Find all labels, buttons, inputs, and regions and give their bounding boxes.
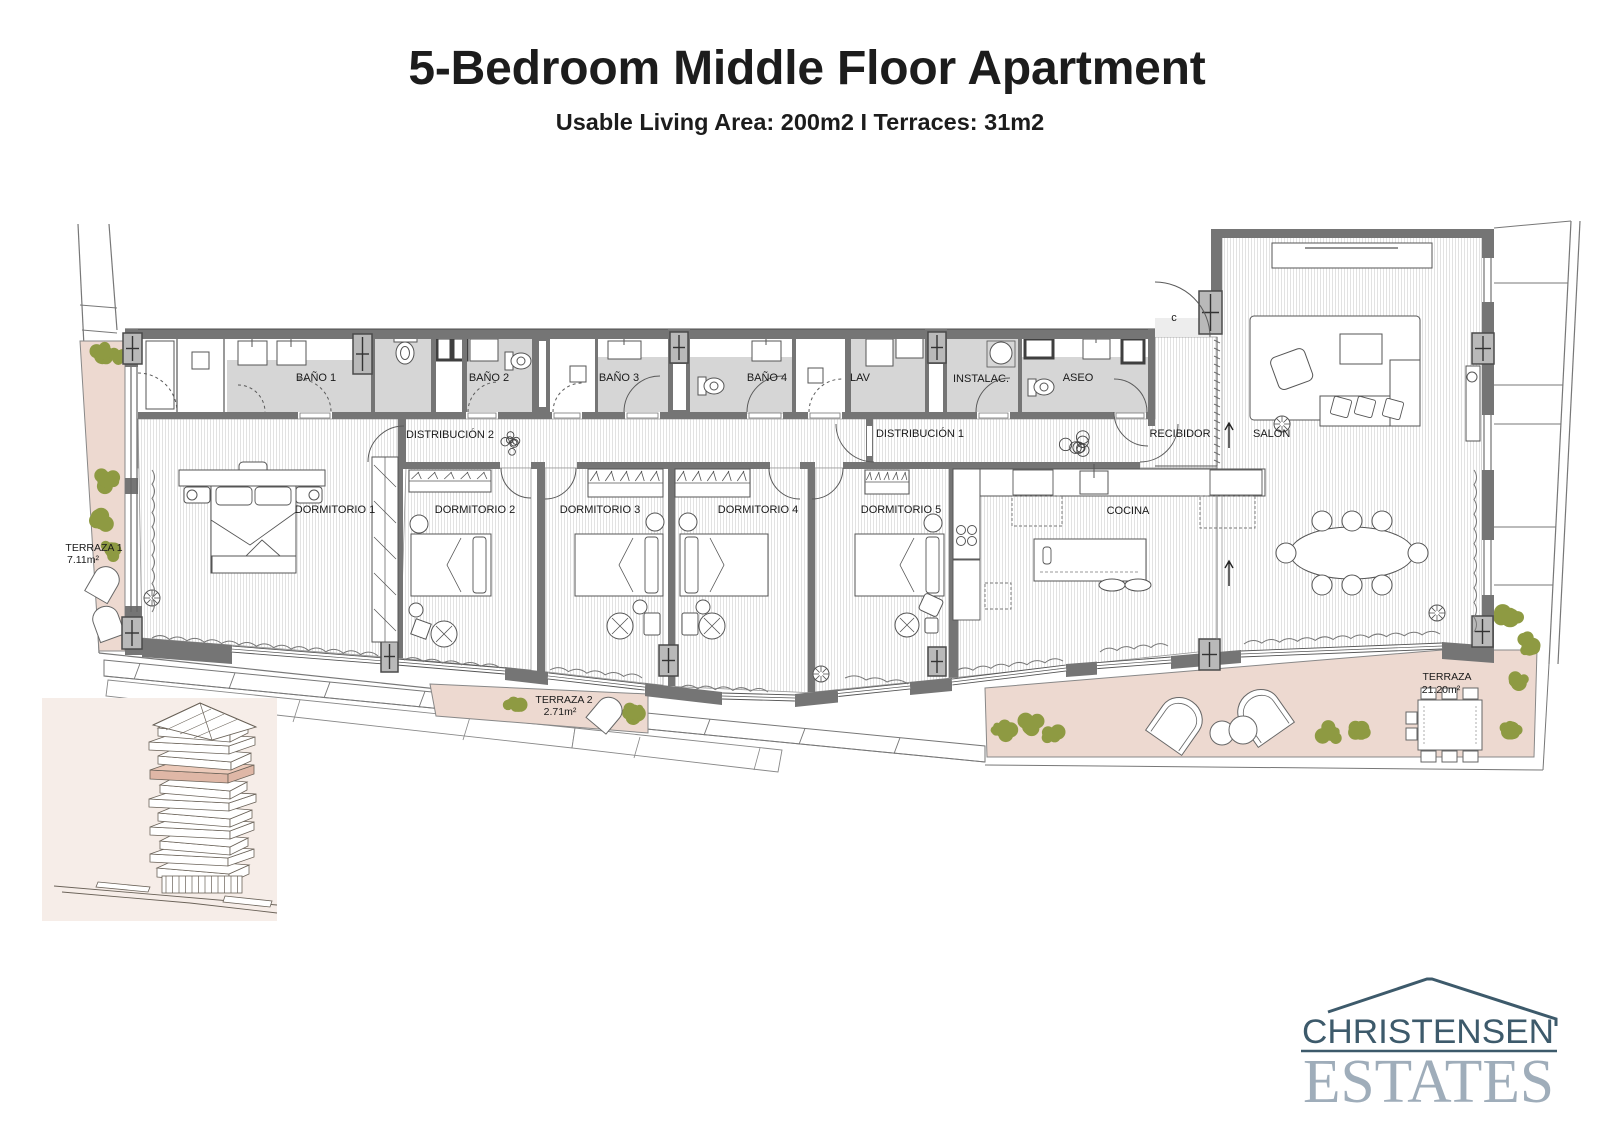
svg-text:BAÑO 2: BAÑO 2	[469, 371, 509, 384]
svg-text:DORMITORIO 1: DORMITORIO 1	[295, 504, 375, 516]
svg-text:DORMITORIO 3: DORMITORIO 3	[560, 504, 640, 516]
svg-text:TERRAZA 2: TERRAZA 2	[535, 694, 592, 706]
svg-text:BAÑO 4: BAÑO 4	[747, 371, 787, 384]
svg-text:SALÓN: SALÓN	[1253, 427, 1290, 440]
svg-text:LAV: LAV	[850, 372, 871, 384]
svg-text:COCINA: COCINA	[1107, 505, 1150, 517]
svg-text:DORMITORIO 2: DORMITORIO 2	[435, 504, 515, 516]
svg-text:TERRAZA: TERRAZA	[1422, 671, 1471, 683]
svg-text:BAÑO 1: BAÑO 1	[296, 371, 336, 384]
svg-text:TERRAZA 1: TERRAZA 1	[65, 542, 122, 554]
svg-text:7.11m²: 7.11m²	[67, 554, 99, 566]
svg-text:c: c	[1171, 312, 1177, 324]
svg-text:21.20m²: 21.20m²	[1422, 684, 1461, 696]
svg-text:2.71m²: 2.71m²	[544, 706, 577, 718]
svg-text:ASEO: ASEO	[1063, 372, 1094, 384]
svg-text:DISTRIBUCIÓN 1: DISTRIBUCIÓN 1	[876, 427, 964, 440]
svg-text:DISTRIBUCIÓN 2: DISTRIBUCIÓN 2	[406, 428, 494, 441]
svg-text:RECIBIDOR: RECIBIDOR	[1149, 428, 1210, 440]
svg-text:DORMITORIO 4: DORMITORIO 4	[718, 504, 798, 516]
svg-text:BAÑO 3: BAÑO 3	[599, 371, 639, 384]
svg-text:INSTALAC.: INSTALAC.	[953, 373, 1009, 385]
svg-text:DORMITORIO 5: DORMITORIO 5	[861, 504, 941, 516]
svg-text:ESTATES: ESTATES	[1303, 1048, 1554, 1116]
svg-text:CHRISTENSEN: CHRISTENSEN	[1302, 1013, 1554, 1051]
